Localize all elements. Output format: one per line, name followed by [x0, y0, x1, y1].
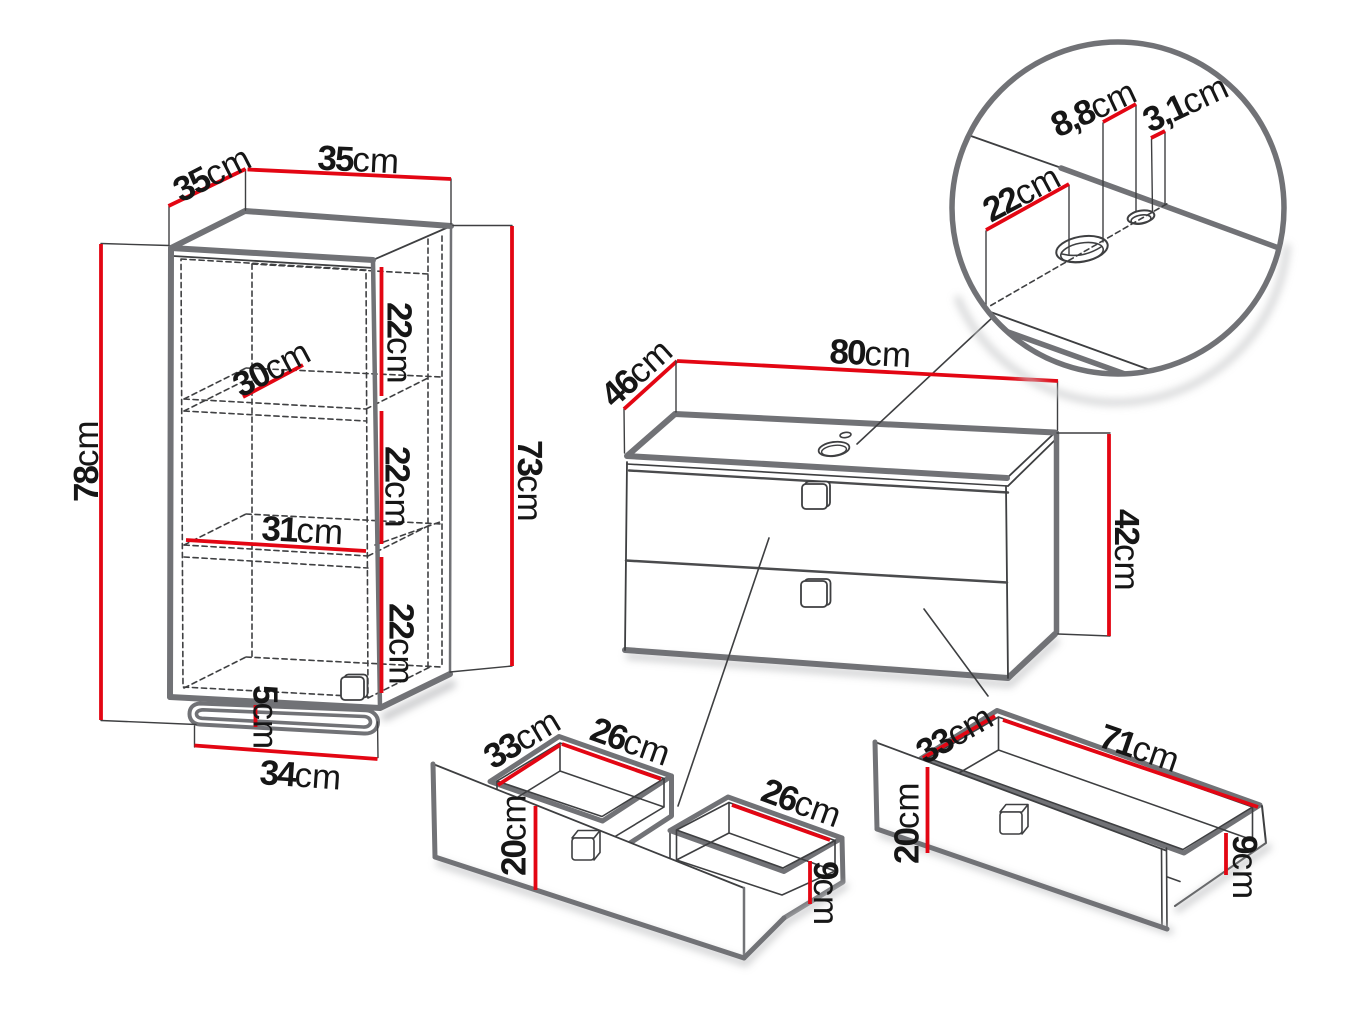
svg-text:22cm: 22cm [382, 603, 421, 685]
svg-text:20cm: 20cm [888, 782, 927, 864]
svg-text:78cm: 78cm [67, 420, 106, 502]
svg-text:31cm: 31cm [261, 509, 345, 552]
svg-text:34cm: 34cm [258, 753, 342, 798]
svg-text:9cm: 9cm [806, 861, 845, 925]
svg-text:9cm: 9cm [1225, 835, 1264, 899]
svg-text:22cm: 22cm [378, 446, 417, 528]
svg-text:80cm: 80cm [829, 332, 913, 375]
svg-text:5cm: 5cm [246, 685, 285, 749]
svg-text:73cm: 73cm [510, 440, 549, 522]
svg-text:46cm: 46cm [593, 331, 680, 415]
svg-text:22cm: 22cm [380, 302, 419, 384]
svg-text:35cm: 35cm [317, 139, 400, 182]
svg-text:20cm: 20cm [495, 794, 534, 876]
svg-text:35cm: 35cm [167, 138, 257, 210]
svg-text:42cm: 42cm [1107, 509, 1146, 591]
